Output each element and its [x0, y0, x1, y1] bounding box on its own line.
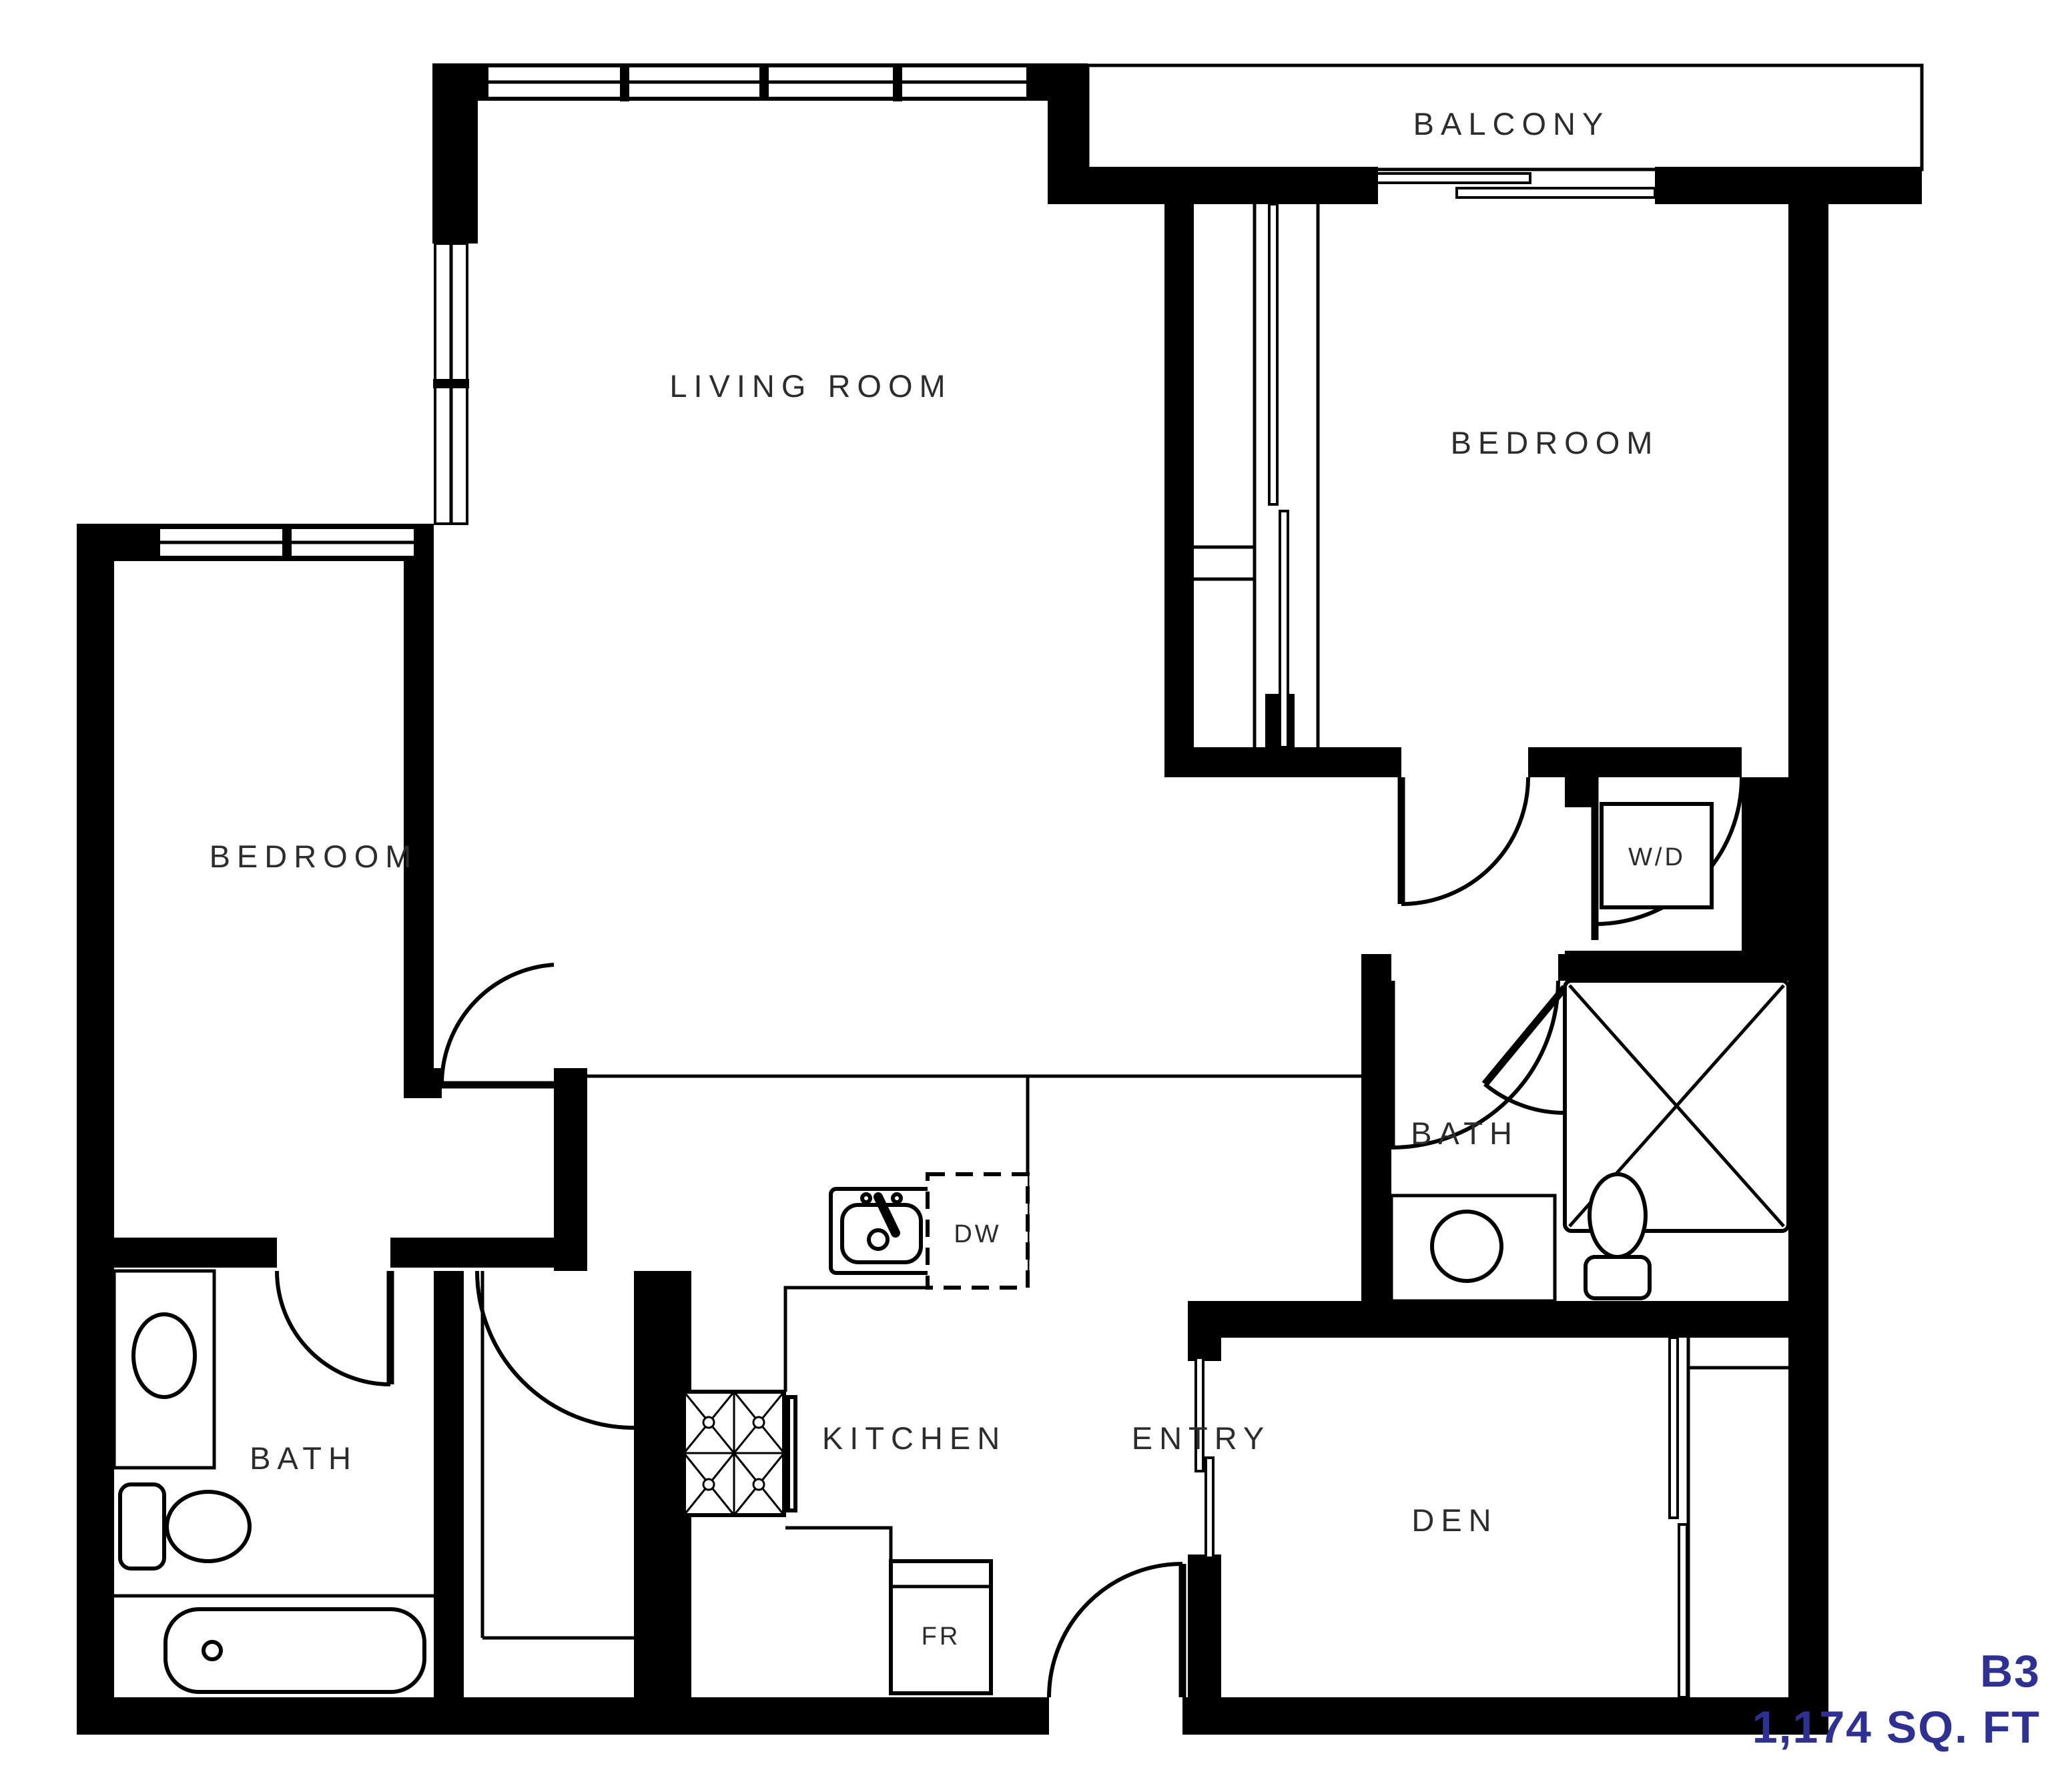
room-label-bath-right: BATH	[1411, 1116, 1519, 1151]
den-closet-slider-panel	[1670, 1338, 1678, 1518]
wall-segment	[77, 524, 114, 1735]
wall-segment	[1528, 747, 1742, 777]
wall-segment	[1188, 1555, 1221, 1735]
counter-edge	[785, 1528, 891, 1561]
window-mullion	[282, 526, 292, 559]
fridge-label: FR	[922, 1623, 961, 1651]
balcony-slider-panel	[1457, 188, 1655, 197]
wall-segment	[1742, 777, 1828, 951]
wall-segment	[390, 1238, 587, 1268]
wall-segment	[1558, 954, 1568, 981]
counter-edge	[785, 1288, 928, 1392]
door-arc-bedroom-right	[1401, 777, 1528, 904]
vanity-sink	[133, 1314, 195, 1397]
wall-segment	[1164, 747, 1401, 777]
room-label-bedroom-right: BEDROOM	[1451, 425, 1660, 460]
toilet-bowl	[167, 1492, 250, 1561]
wall-segment	[404, 1068, 442, 1098]
door-arc-storage	[477, 1271, 634, 1428]
window-mullion	[620, 64, 629, 101]
range-handle-icon	[788, 1397, 795, 1510]
wall-segment	[77, 1697, 1049, 1735]
faucet-handle-icon	[862, 1194, 870, 1202]
toilet-bowl	[1590, 1174, 1646, 1257]
room-label-kitchen: KITCHEN	[822, 1420, 1006, 1456]
wall-segment	[1188, 1301, 1828, 1338]
bath-left-fixtures	[114, 1271, 434, 1692]
wall-segment	[1361, 954, 1391, 1301]
toilet-tank	[120, 1484, 164, 1569]
room-label-entry: ENTRY	[1132, 1420, 1271, 1456]
room-label-den: DEN	[1411, 1502, 1497, 1538]
wall-segment	[1565, 951, 1788, 981]
floor-plan-page: BALCONY	[0, 0, 2072, 1774]
wall-segment	[1164, 167, 1194, 777]
door-leaf-shower	[1485, 987, 1565, 1084]
wall-segment	[1565, 777, 1595, 807]
bedroom-right-closet	[1194, 204, 1318, 747]
faucet-handle-icon	[893, 1194, 901, 1202]
window-mullion	[893, 64, 902, 101]
wall-segment	[404, 561, 434, 1068]
room-label-bath-left: BATH	[250, 1440, 358, 1476]
balcony-slider-panel	[1377, 173, 1530, 183]
unit-name: B3	[1980, 1646, 2041, 1697]
sink-drain-icon	[869, 1230, 888, 1249]
door-arc-bedroom-left	[442, 965, 554, 1085]
closet-slider-panel	[1269, 204, 1277, 504]
room-label-bedroom-left: BEDROOM	[210, 839, 418, 874]
toilet-tank	[1586, 1257, 1650, 1298]
dishwasher-label: DW	[954, 1220, 1001, 1248]
room-label-living-room: LIVING ROOM	[669, 368, 952, 404]
range-grate-icon	[684, 1392, 784, 1515]
kitchen-fixtures: DW FR	[684, 1076, 1028, 1693]
unit-area: 1,174 SQ. FT	[1752, 1702, 2041, 1753]
wall-segment	[114, 1238, 277, 1268]
door-arc-entry	[1049, 1564, 1182, 1697]
vanity-sink	[1432, 1212, 1501, 1281]
wall-segment	[434, 1271, 464, 1697]
closet-slider-panel	[1280, 511, 1288, 747]
wall-segment	[1188, 1301, 1221, 1361]
wall-segment	[1182, 1697, 1828, 1735]
den-slider-panel	[1206, 1458, 1213, 1558]
door-arc-bath-left	[277, 1271, 390, 1384]
tub-drain-icon	[204, 1642, 221, 1659]
window-mullion	[433, 379, 469, 388]
wall-segment	[1048, 167, 1378, 204]
room-label-balcony: BALCONY	[1413, 106, 1610, 141]
washer-dryer-label: W/D	[1628, 843, 1686, 871]
den-closet-slider-panel	[1679, 1524, 1687, 1697]
floor-plan-drawing: BALCONY	[0, 0, 2072, 1774]
